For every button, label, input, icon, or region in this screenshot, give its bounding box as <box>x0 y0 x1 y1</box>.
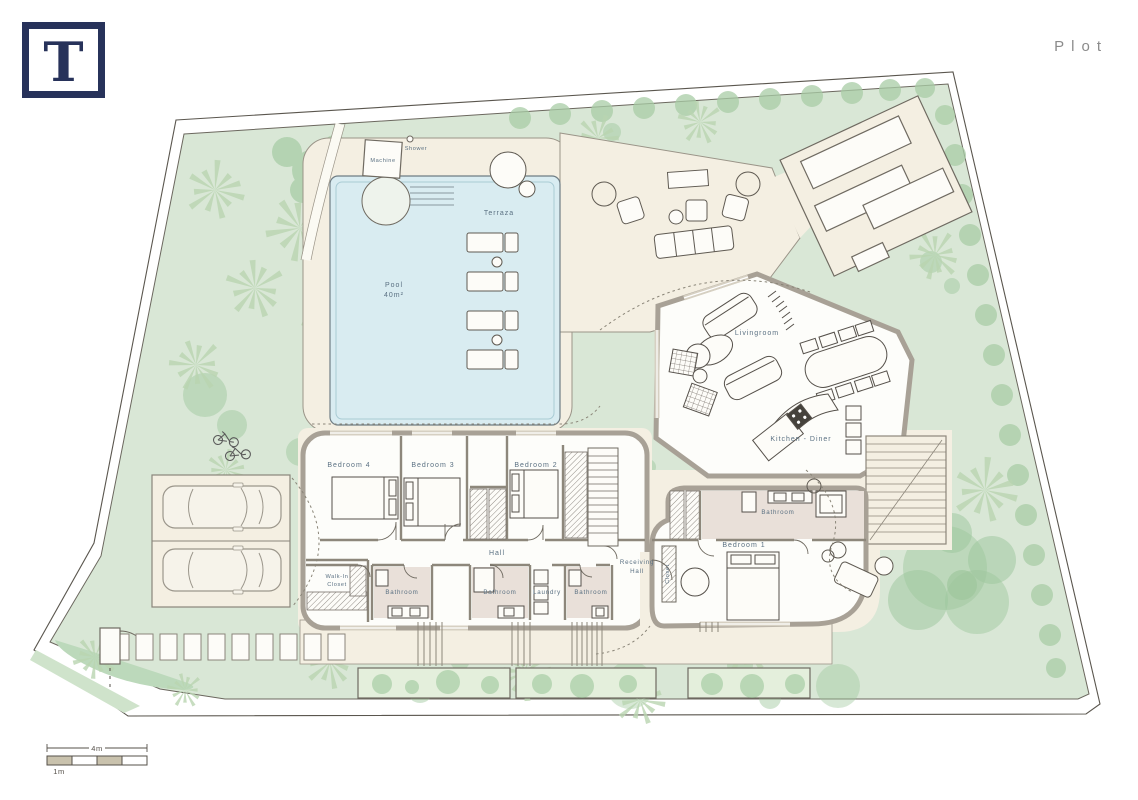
label-terraza: Terraza <box>484 210 514 217</box>
pool-area <box>330 136 560 425</box>
label-bathroom-2: Bathroom <box>483 589 516 596</box>
label-bedroom-2: Bedroom 2 <box>514 462 557 469</box>
entrance-gate <box>100 628 120 664</box>
stairs-exterior <box>866 436 946 544</box>
plot-plan-page: 4m 1m Machine Shower Terraza Pool 40m² L… <box>0 0 1138 800</box>
label-pool-area: 40m² <box>384 292 404 299</box>
label-walk-in-2: Closet <box>327 582 346 588</box>
scale-major-label: 4m <box>91 744 102 753</box>
spa-circle <box>362 177 410 225</box>
page-title: Plot <box>1054 38 1108 55</box>
label-bathroom-1: Bathroom <box>385 589 418 596</box>
label-bedroom-3: Bedroom 3 <box>411 462 454 469</box>
label-livingroom: Livingroom <box>735 330 779 337</box>
label-hall: Hall <box>489 550 505 557</box>
shower-head <box>407 136 413 142</box>
label-machine: Machine <box>370 158 395 164</box>
label-walk-in-1: Walk-In <box>326 574 349 580</box>
label-receiving-hall-1: Receiving <box>620 559 654 566</box>
label-laundry: Laundry <box>533 589 561 596</box>
scale-minor-label: 1m <box>53 767 64 776</box>
label-closet: Closet <box>665 564 671 583</box>
company-logo[interactable]: T <box>22 22 105 98</box>
label-receiving-hall-2: Hall <box>630 568 644 575</box>
logo-letter: T <box>43 35 83 89</box>
label-bedroom-1: Bedroom 1 <box>722 542 765 549</box>
label-shower: Shower <box>405 146 428 152</box>
label-bedroom-4: Bedroom 4 <box>327 462 370 469</box>
terrace-table <box>490 152 526 188</box>
pool <box>330 176 560 425</box>
label-kitchen-diner: Kitchen - Diner <box>770 436 831 443</box>
scale-bar: 4m 1m <box>47 744 147 776</box>
stairs-interior <box>588 448 618 546</box>
floor-plan-canvas: 4m 1m Machine Shower Terraza Pool 40m² L… <box>0 0 1138 800</box>
label-bathroom-suite: Bathroom <box>761 509 794 516</box>
label-pool: Pool <box>385 282 403 289</box>
bedroom1-suite <box>652 479 893 626</box>
label-bathroom-3: Bathroom <box>574 589 607 596</box>
